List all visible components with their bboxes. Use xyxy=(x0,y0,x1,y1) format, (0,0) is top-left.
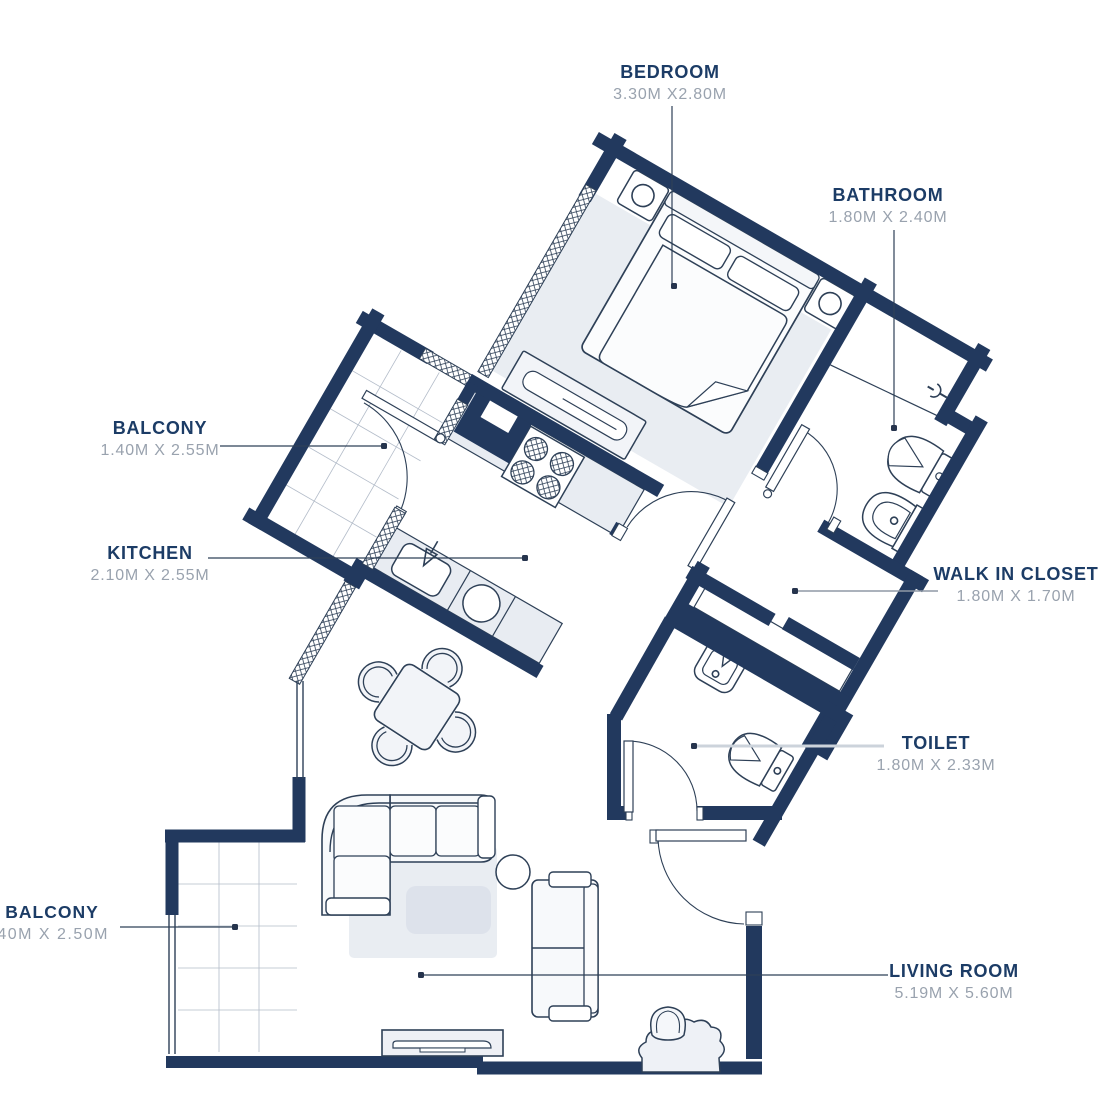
svg-text:1.40M X 2.50M: 1.40M X 2.50M xyxy=(0,926,109,943)
svg-text:WALK IN CLOSET: WALK IN CLOSET xyxy=(933,564,1098,584)
svg-text:BATHROOM: BATHROOM xyxy=(832,185,943,205)
svg-text:1.40M X 2.55M: 1.40M X 2.55M xyxy=(101,442,220,459)
svg-text:BEDROOM: BEDROOM xyxy=(620,62,720,82)
svg-text:1.80M X 1.70M: 1.80M X 1.70M xyxy=(957,588,1076,605)
svg-text:5.19M X 5.60M: 5.19M X 5.60M xyxy=(895,985,1014,1002)
svg-text:KITCHEN: KITCHEN xyxy=(107,543,193,563)
svg-text:1.80M X 2.33M: 1.80M X 2.33M xyxy=(877,757,996,774)
svg-text:3.30M X2.80M: 3.30M X2.80M xyxy=(613,86,727,103)
svg-text:LIVING ROOM: LIVING ROOM xyxy=(889,961,1019,981)
svg-text:2.10M X 2.55M: 2.10M X 2.55M xyxy=(91,567,210,584)
svg-text:1.80M X 2.40M: 1.80M X 2.40M xyxy=(829,209,948,226)
svg-text:BALCONY: BALCONY xyxy=(5,902,99,922)
svg-text:BALCONY: BALCONY xyxy=(113,418,208,438)
svg-text:TOILET: TOILET xyxy=(902,733,970,753)
